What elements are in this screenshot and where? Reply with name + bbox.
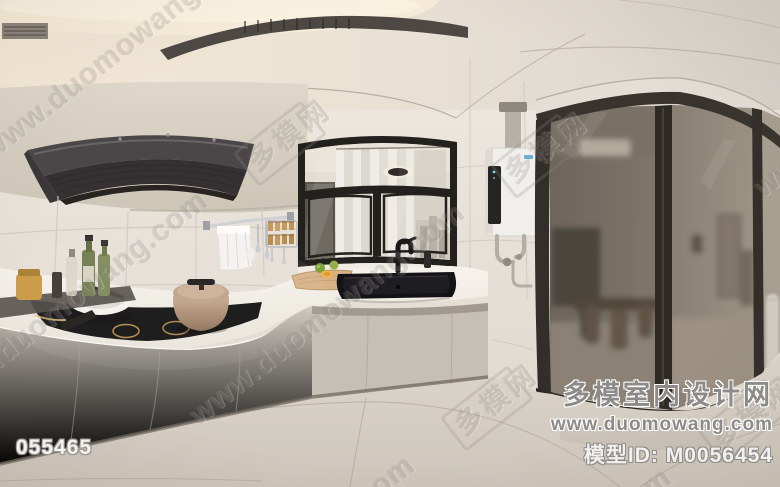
- model-id-watermark: 模型ID: M0056454: [551, 445, 773, 466]
- site-url-watermark: www.duomowang.com: [551, 415, 773, 434]
- panorama-image: www.duomowang.com多模网www.duomowang.com多模网…: [0, 0, 780, 487]
- site-name-watermark: 多模室内设计网: [551, 382, 773, 409]
- image-id-watermark: 055465: [16, 436, 92, 460]
- site-watermark-block: 多模室内设计网 www.duomowang.com 模型ID: M0056454: [551, 382, 773, 466]
